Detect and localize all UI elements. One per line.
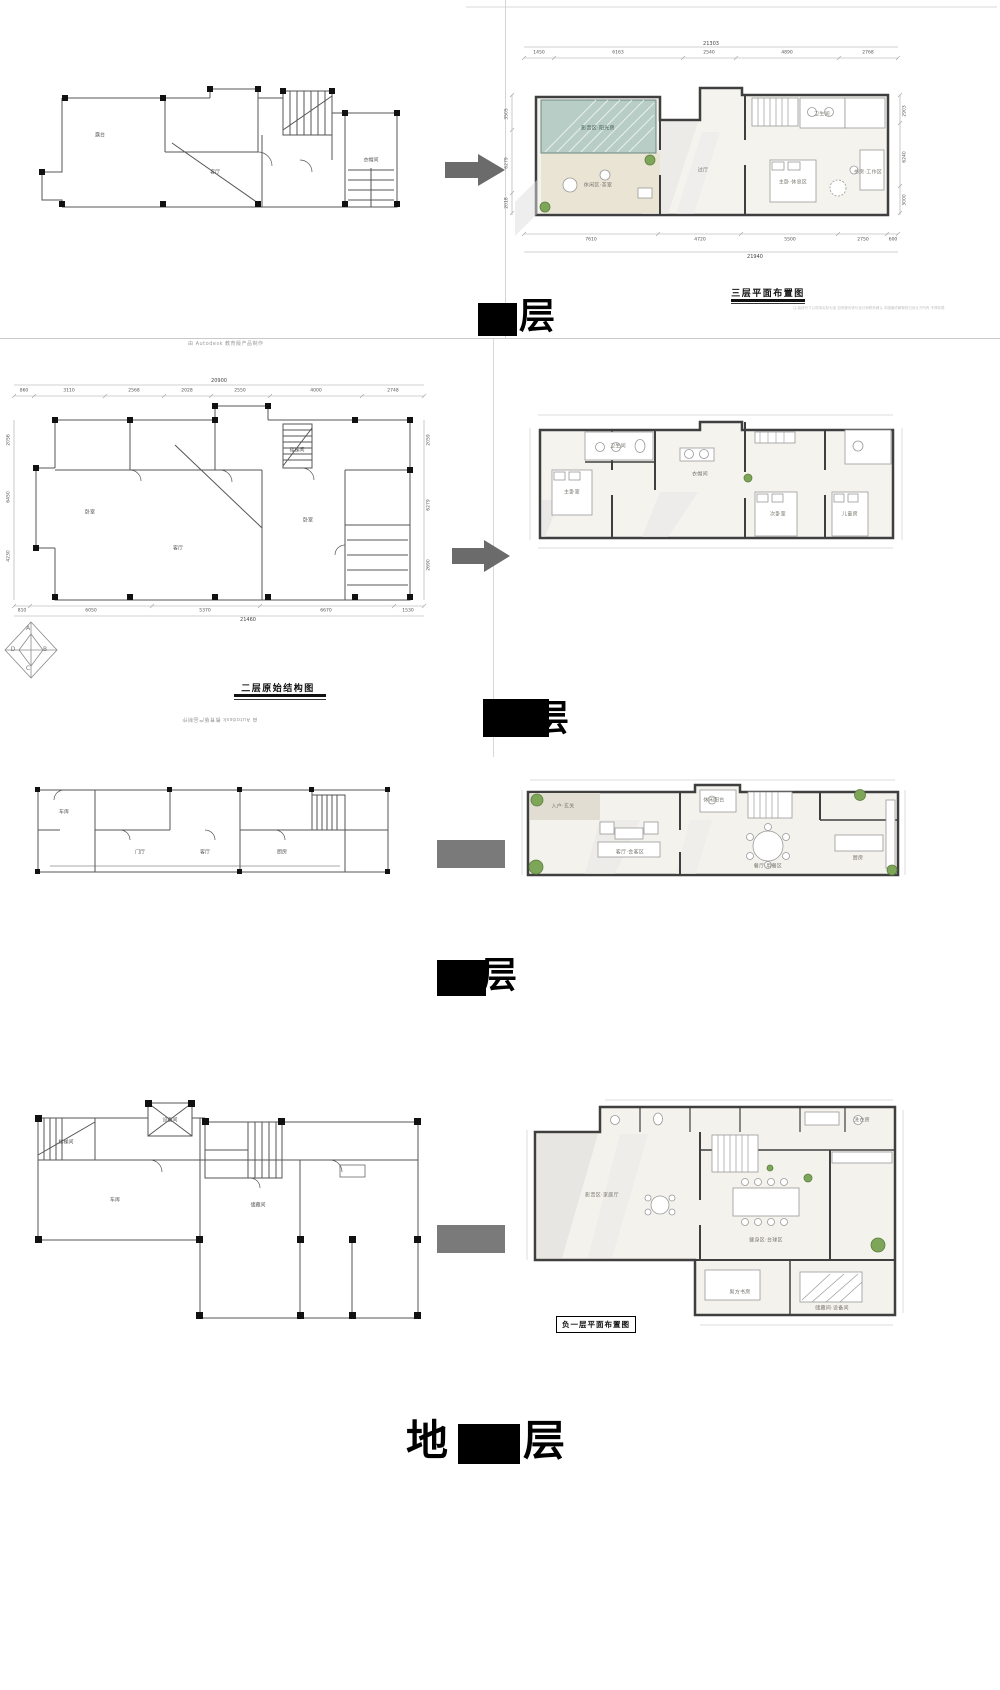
- room-label: 厨房: [853, 855, 864, 862]
- plan-label-basement: 负一层平面布置图: [556, 1316, 636, 1333]
- dim-label: 2059: [427, 434, 432, 445]
- dim-label: 4000: [310, 389, 321, 394]
- plant-icon: [540, 202, 550, 212]
- cad-room-label: 厨房: [277, 849, 287, 856]
- dim-label: 2028: [181, 389, 192, 394]
- dim-label: 6050: [85, 609, 96, 614]
- render-plan-basement: [535, 1107, 895, 1315]
- dim-label: 2056: [7, 434, 12, 445]
- cad-plan-floor3-columns: [39, 86, 400, 207]
- room-label: 过厅: [698, 167, 709, 174]
- plant-icon: [744, 474, 752, 482]
- dim-label: 7610: [585, 238, 596, 243]
- render-plan-floor2: [540, 422, 893, 538]
- room-label: 休闲阳台: [703, 797, 724, 804]
- arrow-icon: [452, 540, 510, 572]
- cad-room-label: 楼梯间: [289, 447, 304, 454]
- cad-room-label: 门厅: [135, 849, 145, 856]
- dim-label: 6450: [7, 491, 12, 502]
- cad-room-label: 衣帽间: [363, 157, 378, 164]
- dim-label: 2748: [387, 389, 398, 394]
- room-label: 入户·玄关: [551, 803, 574, 810]
- cad-plan-floor3: [42, 89, 397, 207]
- room-label: 储藏间·设备间: [815, 1305, 849, 1312]
- cad-room-label: 车库: [59, 809, 69, 816]
- floorplan-compare-sheet: 21303 1450 6163 2540 4890 2768 7610 4720…: [0, 0, 1000, 1690]
- dim-label: 2540: [703, 51, 714, 56]
- dim-label: 6163: [612, 51, 623, 56]
- dim-bottom-total-floor2: 21460: [240, 617, 256, 623]
- dim-top-total-floor2: 20900: [211, 378, 227, 384]
- dim-label: 6279: [427, 499, 432, 510]
- cad-room-label: 露台: [95, 132, 105, 139]
- dim-label: 4720: [694, 238, 705, 243]
- dim-label: 1450: [533, 51, 544, 56]
- arrow-block: [437, 840, 505, 868]
- dim-label: 5500: [784, 238, 795, 243]
- cad-plan-basement-columns: [35, 1100, 421, 1319]
- dim-label: 4230: [7, 550, 12, 561]
- room-label: 主卧·休息区: [779, 179, 807, 186]
- section3-drawing: [0, 760, 1000, 1060]
- room-label: 主卧室: [564, 489, 580, 496]
- dim-label: 2568: [128, 389, 139, 394]
- room-label: 卫生间: [814, 111, 830, 118]
- floor-big-label-1f: 层: [481, 958, 517, 994]
- dim-label: 4890: [781, 51, 792, 56]
- dim-bottom-total-floor3: 21940: [747, 254, 763, 260]
- room-label: 影音区·阳光房: [581, 125, 615, 132]
- room-label: 休闲区·茶室: [584, 182, 612, 189]
- cad-room-label: 卧室: [85, 509, 95, 516]
- dim-label: 2690: [427, 559, 432, 570]
- cad-room-label: 设备间: [162, 1117, 177, 1124]
- dim-label: 2550: [234, 389, 245, 394]
- section4-drawing: [0, 1060, 1000, 1690]
- dim-label: 3110: [63, 389, 74, 394]
- cad-room-label: 客厅: [210, 169, 220, 176]
- room-label: 次卧室: [770, 511, 786, 518]
- room-label: 客厅·会客区: [616, 849, 644, 856]
- arrow-block: [437, 1225, 505, 1253]
- title-underline-thin: [731, 303, 805, 304]
- cad-plan-basement: [38, 1103, 418, 1318]
- cad-plan-floor1: [38, 790, 388, 872]
- dim-label: 6279: [505, 157, 510, 168]
- room-label: 衣帽间: [692, 471, 708, 478]
- plan-title-floor3: 三层平面布置图: [731, 286, 805, 299]
- title-underline: [731, 299, 805, 302]
- title-underline-thin: [234, 699, 326, 700]
- redaction-box: [483, 699, 549, 737]
- redaction-box: [437, 960, 486, 996]
- title-underline: [234, 694, 326, 697]
- cad-room-label: 客厅: [200, 849, 210, 856]
- dim-label: 2750: [857, 238, 868, 243]
- dim-label: 6670: [320, 609, 331, 614]
- room-label: 健身区·台球区: [749, 1237, 783, 1244]
- floor-big-label-basement-suffix: 层: [523, 1420, 565, 1462]
- room-label: 儿童房: [842, 511, 858, 518]
- render-plan-floor3: [515, 88, 888, 236]
- dim-label: 600: [889, 238, 898, 243]
- logo-letter: B: [43, 646, 47, 653]
- dim-label: 2018: [505, 197, 510, 208]
- cad-room-label: 车库: [110, 1197, 120, 1204]
- logo-letter: A: [26, 625, 30, 632]
- dim-label: 5370: [199, 609, 210, 614]
- cad-room-label: 客厅: [173, 545, 183, 552]
- plant-icon: [645, 155, 655, 165]
- arrow-icon: [445, 154, 505, 186]
- dim-label: 2768: [862, 51, 873, 56]
- dim-label: 3505: [505, 108, 510, 119]
- autodesk-stamp-flipped: 由 Autodesk 教育版产品制作: [182, 716, 258, 723]
- floor-big-label-basement-prefix: 地: [406, 1420, 448, 1462]
- room-label: 洗衣房: [854, 1117, 870, 1124]
- room-label: 书房·工作区: [854, 169, 882, 176]
- disclaimer-note: 注:装修尺寸以现场实际为准 如有疑问请与设计师联系确认 本图最终解释权归设计方所…: [793, 306, 945, 311]
- logo-letter: C: [26, 665, 30, 672]
- dim-label: 6240: [903, 151, 908, 162]
- dim-label: 810: [18, 609, 27, 614]
- cad-room-label: 储藏间: [250, 1202, 265, 1209]
- redaction-box: [478, 303, 517, 336]
- dim-label: 2903: [903, 105, 908, 116]
- room-label: 男方书房: [729, 1289, 750, 1296]
- plan-label-floor2-original: 二层原始结构图: [241, 681, 315, 694]
- dim-label: 1530: [402, 609, 413, 614]
- room-label: 卫生间: [610, 443, 626, 450]
- room-label: 餐厅·用餐区: [754, 863, 782, 870]
- section2-drawing: [0, 339, 1000, 760]
- dim-top-total-floor3: 21303: [703, 41, 719, 47]
- redaction-box: [458, 1424, 520, 1464]
- section1-drawing: [0, 0, 1000, 339]
- cad-room-label: 卧室: [303, 517, 313, 524]
- room-label: 影音区·家庭厅: [585, 1192, 619, 1199]
- floor-big-label-3f: 层: [519, 299, 555, 335]
- dim-label: 3000: [903, 194, 908, 205]
- cad-plan-floor2: [36, 406, 410, 600]
- dim-label: 860: [20, 389, 29, 394]
- cad-room-label: 楼梯间: [58, 1139, 73, 1146]
- logo-letter: D: [11, 646, 16, 653]
